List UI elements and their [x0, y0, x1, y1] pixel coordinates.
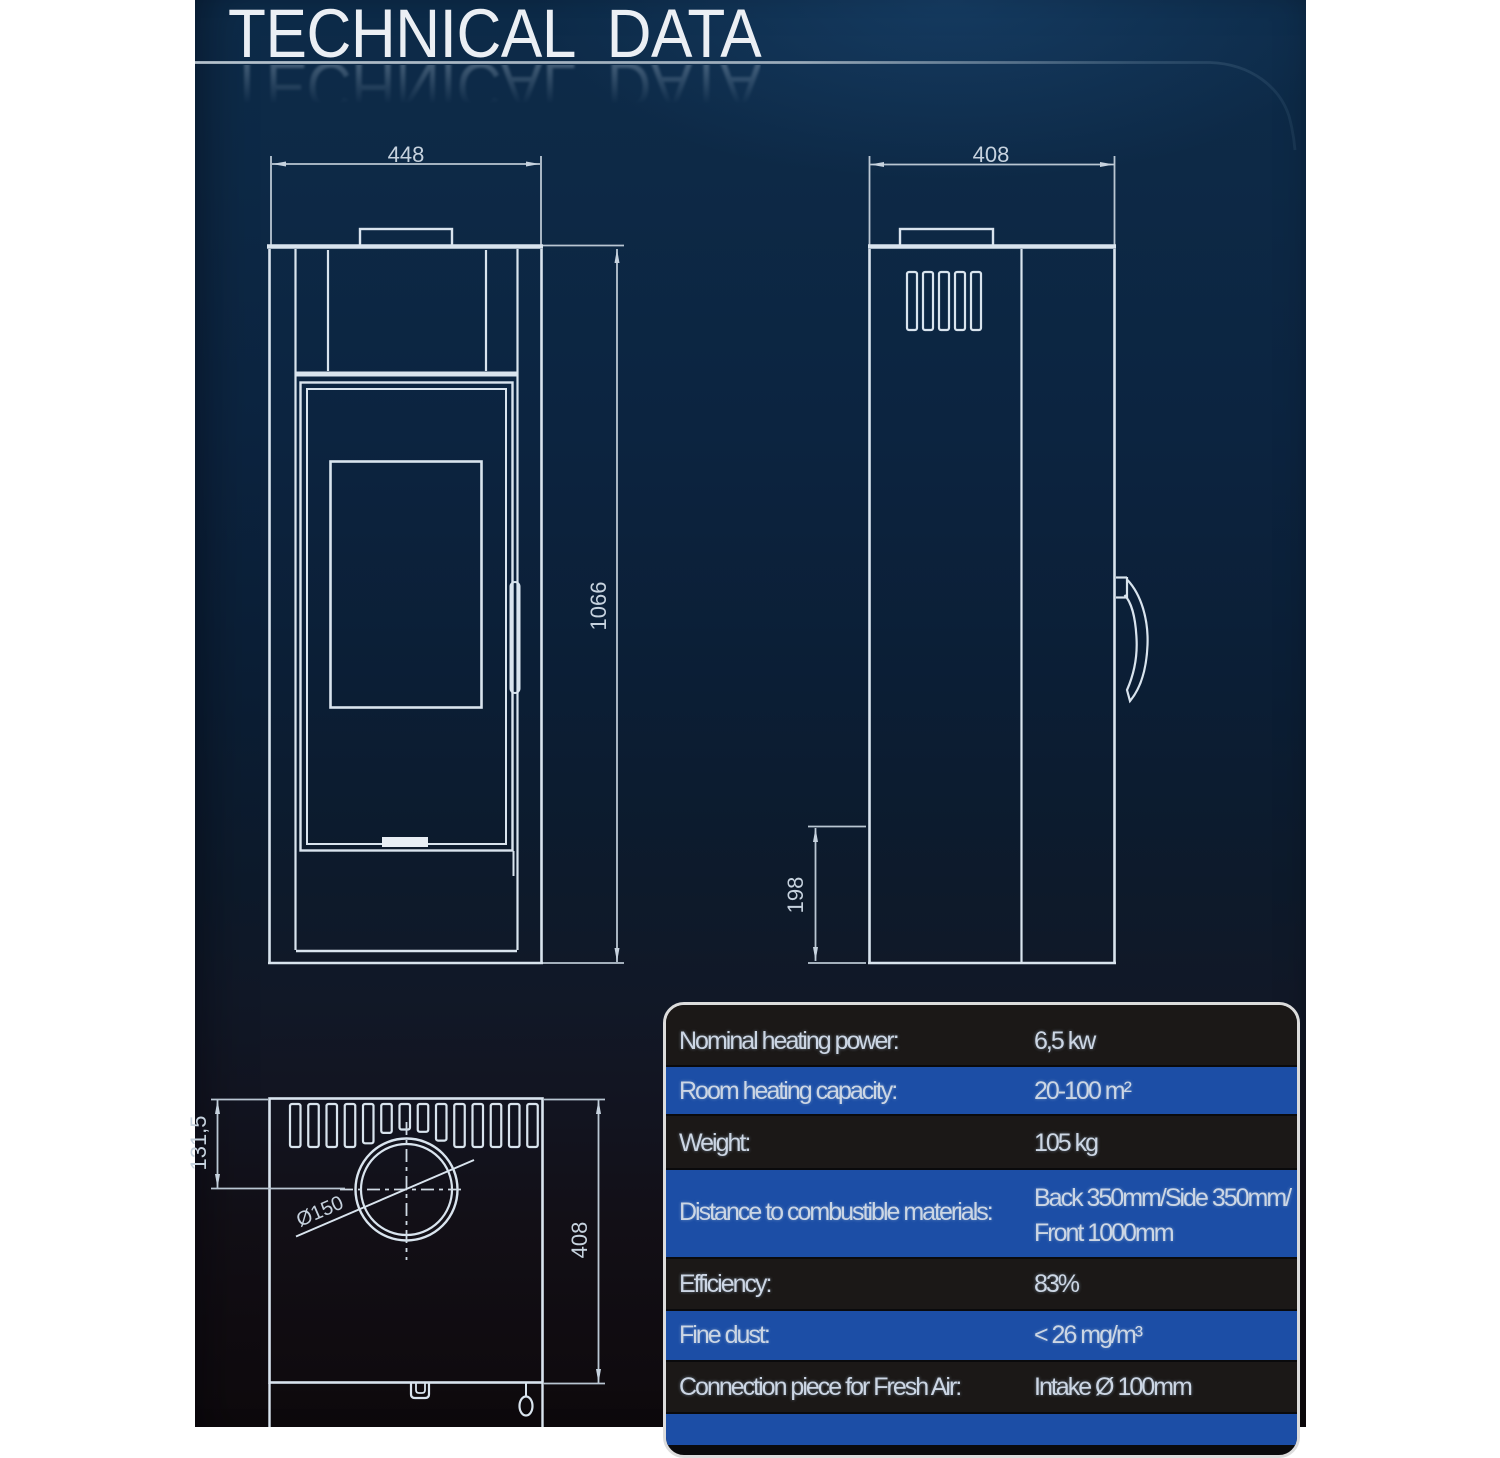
svg-text:448: 448: [388, 142, 425, 167]
svg-text:408: 408: [973, 142, 1010, 167]
svg-text:198: 198: [783, 877, 808, 914]
svg-text:1066: 1066: [586, 582, 611, 631]
svg-text:131,5: 131,5: [186, 1115, 211, 1170]
svg-text:408: 408: [567, 1222, 592, 1259]
